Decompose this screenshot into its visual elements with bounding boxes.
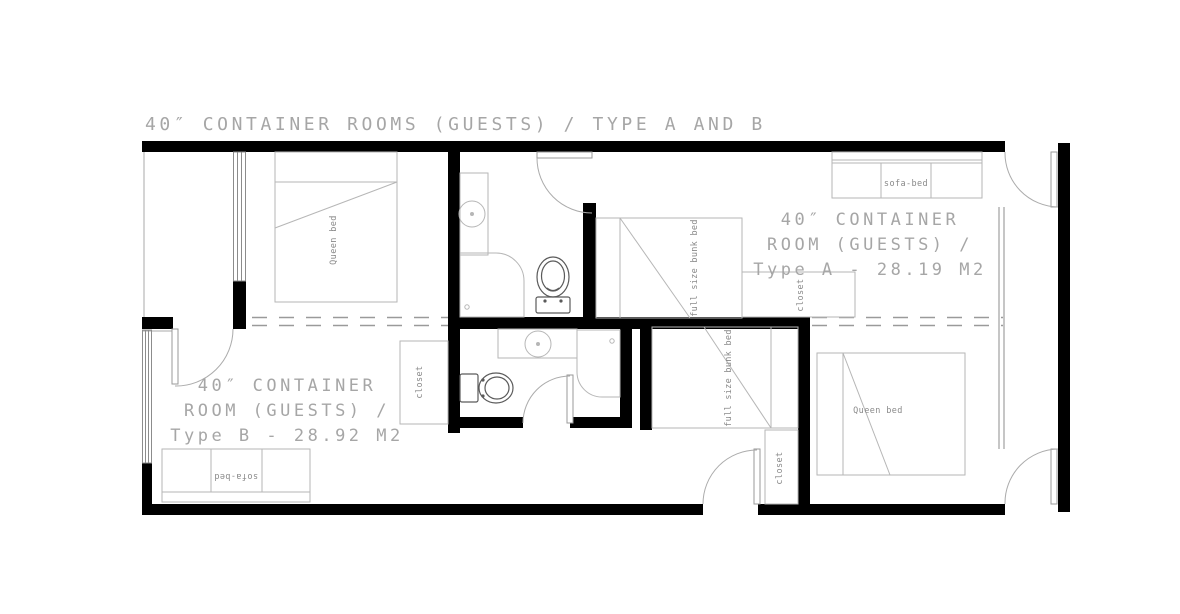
wall-stub-under-window bbox=[233, 281, 246, 329]
wall-upper-bath-right bbox=[583, 203, 596, 329]
wall-lower-bath-bottom-left bbox=[448, 417, 523, 428]
type-b-line-2: ROOM (GUESTS) / bbox=[184, 401, 390, 421]
door-lower-bathroom bbox=[523, 375, 573, 423]
window-right bbox=[999, 207, 1004, 449]
wall-bottom-right bbox=[758, 504, 1005, 515]
closet-lower-left-label: closet bbox=[415, 365, 425, 398]
queen-bed-top-label: Queen bed bbox=[329, 215, 339, 265]
toilet-lower bbox=[460, 373, 513, 403]
floor-plan-drawing: 40″ CONTAINER ROOMS (GUESTS) / TYPE A AN… bbox=[0, 0, 1180, 614]
window-upper-left bbox=[234, 152, 246, 281]
wall-top bbox=[142, 141, 1005, 152]
closet-bottom-middle: closet bbox=[765, 430, 798, 504]
vanity-sink-lower bbox=[498, 329, 577, 358]
shower-upper bbox=[460, 253, 524, 317]
bunk-bed-bottom: full size bunk bed bbox=[652, 327, 798, 428]
sofa-bed-bottom-label: sofa-bed bbox=[214, 471, 258, 481]
floor-plan-page: 40″ CONTAINER ROOMS (GUESTS) / TYPE A AN… bbox=[0, 0, 1180, 614]
wall-left-lower bbox=[142, 463, 152, 515]
type-b-line-3: Type B - 28.92 M2 bbox=[170, 426, 404, 446]
type-a-line-1: 40″ CONTAINER bbox=[781, 210, 960, 230]
wall-lower-bath-right bbox=[620, 317, 632, 428]
boundary-lines bbox=[142, 152, 176, 331]
sofa-bed-top: sofa-bed bbox=[832, 152, 982, 198]
queen-bed-bottom: Queen bed bbox=[817, 353, 965, 475]
type-b-line-1: 40″ CONTAINER bbox=[198, 376, 377, 396]
wall-bunkroom-left bbox=[640, 329, 652, 430]
plan-title: 40″ CONTAINER ROOMS (GUESTS) / TYPE A AN… bbox=[145, 114, 766, 135]
wall-bathrooms-left bbox=[448, 141, 460, 433]
door-entry-top-right bbox=[1005, 152, 1058, 207]
sofa-bed-top-label: sofa-bed bbox=[884, 179, 928, 189]
bunk-bed-top-label: full size bunk bed bbox=[690, 219, 700, 317]
sofa-bed-bottom: sofa-bed bbox=[162, 449, 310, 502]
window-lower-left bbox=[143, 330, 152, 463]
room-label-type-a: 40″ CONTAINER ROOM (GUESTS) / Type A - 2… bbox=[753, 210, 987, 280]
closet-top-right-label: closet bbox=[796, 278, 806, 311]
bunk-bed-top: full size bunk bed bbox=[596, 218, 742, 318]
queen-bed-bottom-label: Queen bed bbox=[853, 406, 903, 416]
closet-bottom-middle-label: closet bbox=[775, 451, 785, 484]
type-a-line-3: Type A - 28.19 M2 bbox=[753, 260, 987, 280]
door-bunkroom-bottom bbox=[703, 449, 760, 504]
queen-bed-top: Queen bed bbox=[275, 152, 397, 302]
door-entry-bottom-right bbox=[1005, 449, 1058, 504]
wall-middle-left bbox=[142, 317, 173, 329]
room-label-type-b: 40″ CONTAINER ROOM (GUESTS) / Type B - 2… bbox=[170, 376, 404, 446]
upper-bathroom bbox=[459, 173, 570, 317]
closet-lower-left: closet bbox=[400, 341, 448, 424]
vanity-sink-upper bbox=[459, 173, 488, 255]
shower-lower bbox=[577, 330, 620, 397]
wall-bottom-left bbox=[142, 504, 703, 515]
bunk-bed-bottom-label: full size bunk bed bbox=[724, 329, 734, 427]
wall-far-right bbox=[1058, 143, 1070, 512]
type-a-line-2: ROOM (GUESTS) / bbox=[767, 235, 973, 255]
lower-bathroom bbox=[460, 329, 620, 403]
wall-bunkroom-right bbox=[798, 317, 810, 515]
toilet-upper bbox=[536, 257, 570, 313]
